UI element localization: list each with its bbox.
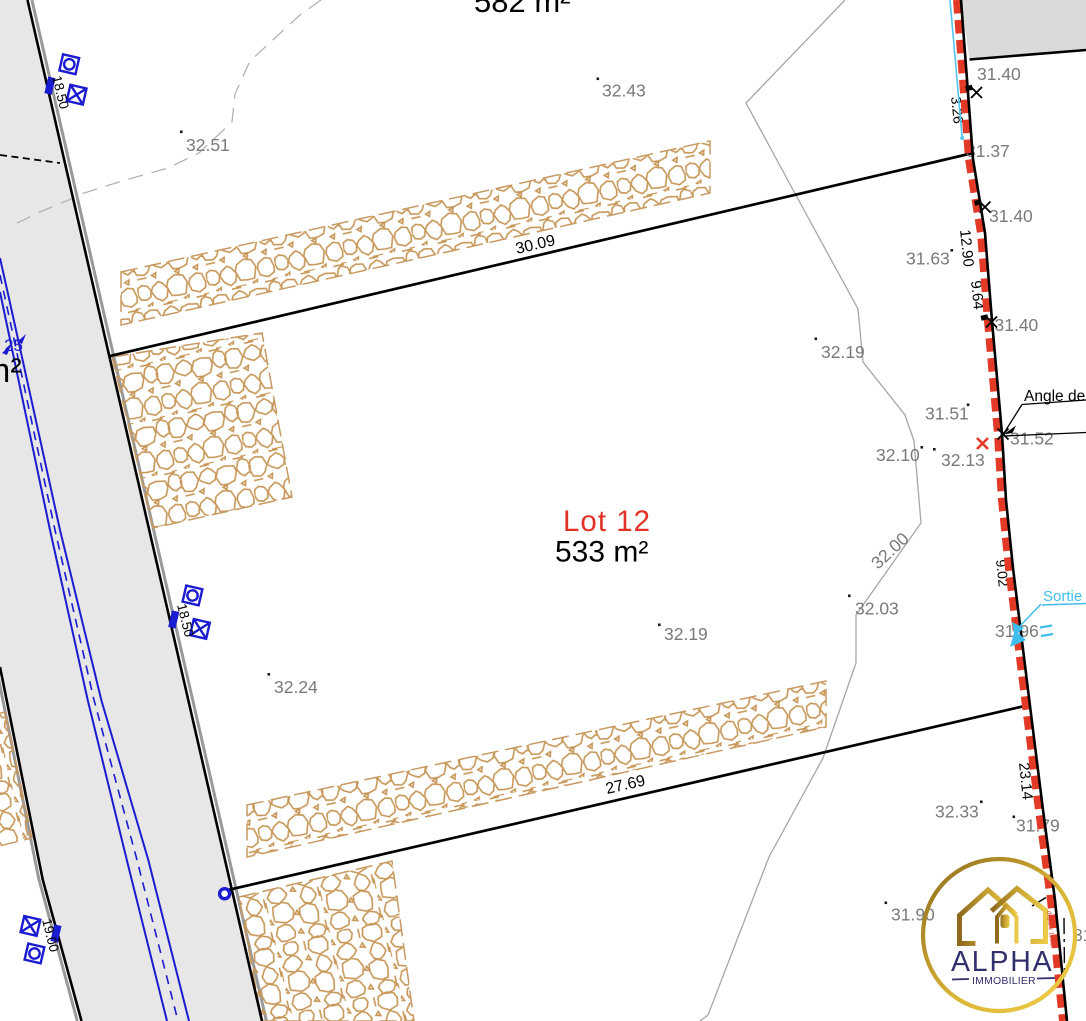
svg-text:32.19: 32.19 — [664, 624, 708, 644]
svg-text:31.52: 31.52 — [1010, 429, 1054, 449]
svg-text:Angle de: Angle de — [1024, 388, 1085, 405]
svg-text:32.24: 32.24 — [274, 677, 318, 697]
svg-text:533 m²: 533 m² — [555, 536, 648, 569]
svg-text:31.40: 31.40 — [977, 64, 1021, 84]
svg-text:582 m²: 582 m² — [474, 0, 570, 19]
svg-text:32.03: 32.03 — [855, 599, 899, 619]
svg-text:32.51: 32.51 — [186, 135, 230, 155]
svg-text:32.19: 32.19 — [821, 342, 865, 362]
svg-text:31.51: 31.51 — [925, 404, 969, 424]
svg-text:32.33: 32.33 — [935, 802, 979, 822]
svg-text:Sortie: Sortie — [1043, 588, 1082, 605]
svg-text:IMMOBILIER: IMMOBILIER — [972, 975, 1036, 987]
svg-text:m²: m² — [0, 352, 22, 390]
svg-text:31.40: 31.40 — [989, 206, 1033, 226]
svg-text:32.10: 32.10 — [876, 445, 920, 465]
svg-text:ALPHA: ALPHA — [951, 946, 1053, 978]
svg-text:31.40: 31.40 — [995, 315, 1039, 335]
svg-text:31.63: 31.63 — [906, 249, 950, 269]
svg-text:Lot 12: Lot 12 — [563, 505, 651, 538]
svg-text:32.43: 32.43 — [602, 81, 646, 101]
svg-text:32.13: 32.13 — [941, 450, 985, 470]
